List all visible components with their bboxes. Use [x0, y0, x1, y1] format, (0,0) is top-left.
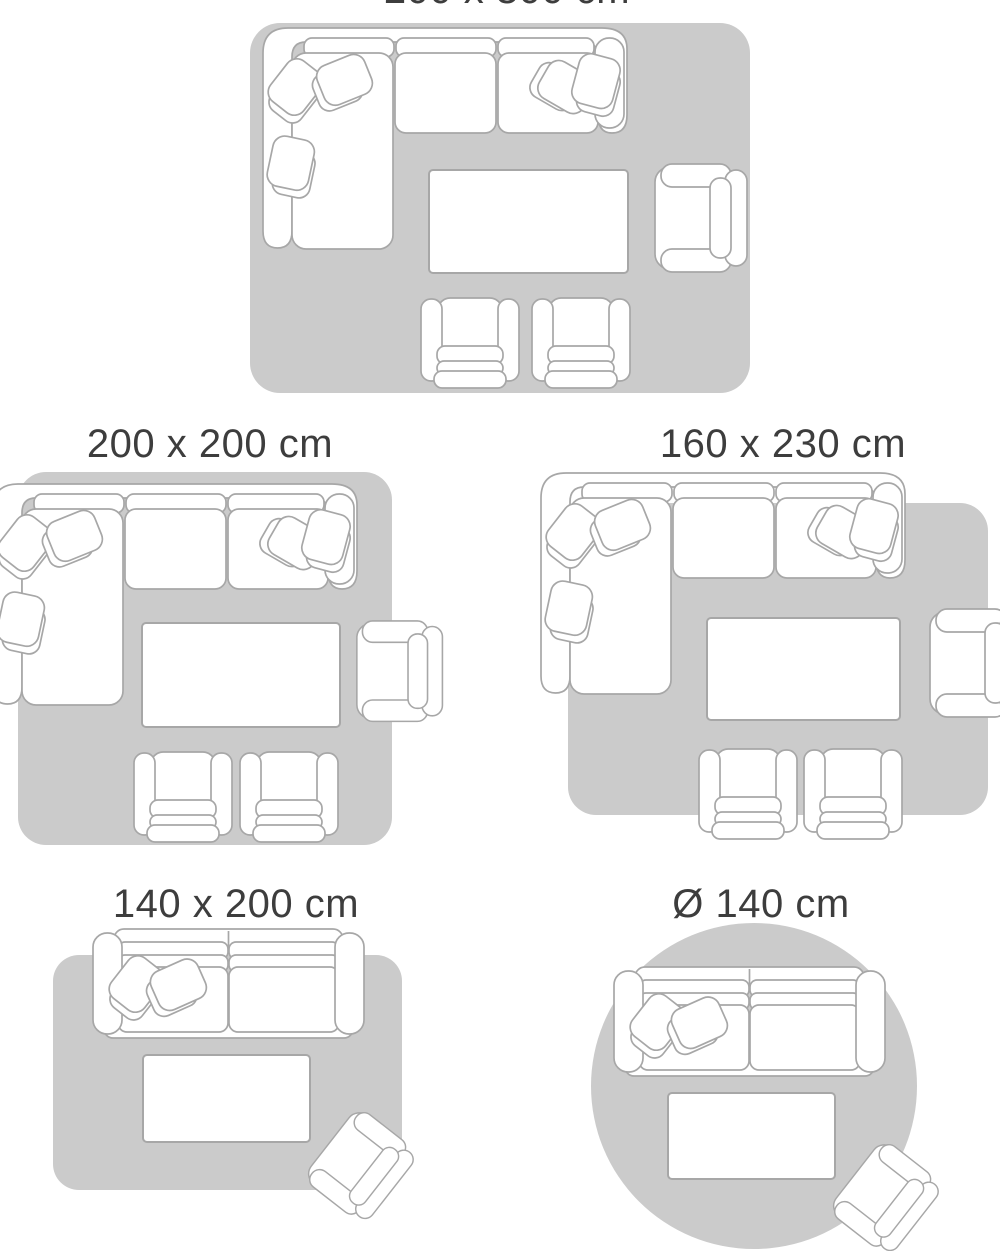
- coffee-table-icon: [668, 1093, 835, 1179]
- armchair-icon: [655, 164, 747, 272]
- figure-140x200: [53, 929, 420, 1226]
- coffee-table-icon: [143, 1055, 310, 1142]
- armchair-icon: [930, 609, 1000, 717]
- armchair-icon: [421, 298, 519, 388]
- armchair-icon: [532, 298, 630, 388]
- figure-d140: [591, 923, 945, 1251]
- coffee-table-icon: [142, 623, 340, 727]
- coffee-table-icon: [429, 170, 628, 273]
- two-seater-sofa-icon: [93, 929, 364, 1038]
- armchair-icon: [804, 749, 902, 839]
- armchair-icon: [240, 752, 338, 842]
- armchair-icon: [357, 621, 443, 721]
- rug-size-guide-page: 200 x 300 cm 200 x 200 cm 160 x 230 cm 1…: [0, 0, 1000, 1251]
- rug-layout-illustrations: [0, 0, 1000, 1251]
- armchair-icon: [134, 752, 232, 842]
- figure-160x230: [537, 473, 1000, 839]
- figure-200x300: [250, 23, 750, 393]
- coffee-table-icon: [707, 618, 900, 720]
- two-seater-sofa-icon: [614, 967, 885, 1076]
- armchair-icon: [699, 749, 797, 839]
- figure-200x200: [0, 472, 442, 845]
